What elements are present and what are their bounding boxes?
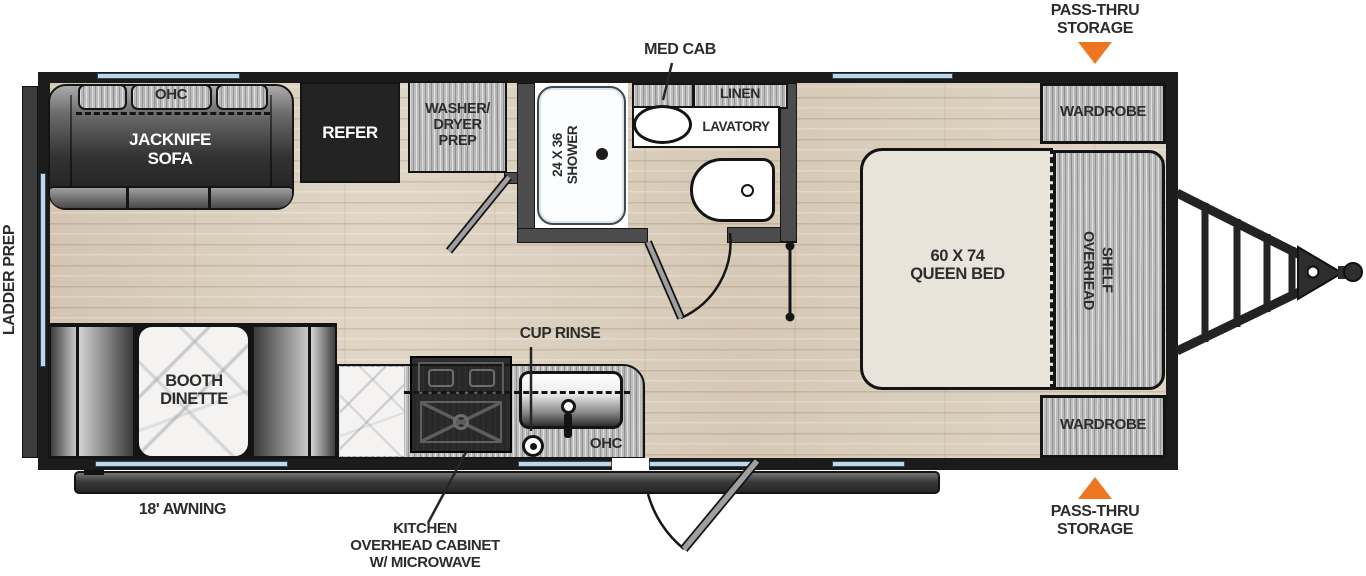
rear-bumper [22,86,38,458]
hitch-safety-ring [1308,267,1319,278]
window-top-left [97,73,240,79]
burner [469,369,495,387]
hitch-coupler [1298,247,1342,299]
wall-right [1166,72,1178,470]
hitch-frame [1177,193,1362,351]
oven-knob [453,414,469,430]
lavatory-label: LAVATORY [694,119,778,134]
cup-rinse-dot [530,443,537,450]
window-bottom-dinette [95,461,288,467]
shower-wall-bottom [517,228,648,243]
washer-dryer-label: WASHER/ DRYER PREP [410,101,505,150]
sofa-arm-line [270,95,272,187]
faucet-head [561,399,576,414]
shower-drain [596,148,608,160]
kitchen-dashed-line [404,391,630,394]
sofa-seat-cushions [50,186,292,208]
window-top-bedroom [832,73,953,79]
dinette-seat-right [254,327,308,456]
window-bottom-kitchen [518,461,612,467]
shower-wall-left [517,83,535,243]
toilet-flush-button [741,184,754,197]
lavatory-sink [633,105,692,144]
wardrobe-front-label: WARDROBE [1046,104,1160,121]
dinette-seat-left [79,327,133,456]
bath-wall-corner [504,172,518,184]
dinette-backrest-right [311,327,335,456]
sofa-ohc-label: OHC [141,87,201,104]
queen-bed-label: 60 X 74 QUEEN BED [880,247,1035,284]
linen-label: LINEN [700,86,780,102]
awning-label: 18' AWNING [110,501,255,519]
cup-rinse-label: CUP RINSE [495,325,625,342]
rv-floorplan: LADDER PREP 18' AWNING OHC JACKNIFE SOFA… [0,0,1366,576]
dinette-backrest-left [51,327,76,456]
hitch-ball [1344,263,1362,281]
sofa-cushion-divider [208,187,211,208]
pass-thru-bottom-arrow [1078,477,1112,499]
shower-label: 24 X 36 SHOWER [550,110,590,200]
window-rear [40,173,46,367]
kitchen-counter-marble [340,367,404,456]
stove-burner-grate [418,362,504,394]
refer-label: REFER [305,123,395,142]
booth-dinette-label: BOOTH DINETTE [139,372,249,409]
awning-bar [74,471,940,494]
pass-thru-top-label: PASS-THRU STORAGE [1020,2,1170,38]
faucet-stem [564,413,572,438]
burner [428,369,454,387]
sofa-cushion-divider [126,187,129,208]
window-entry-door [649,461,753,467]
ladder-prep-label: LADDER PREP [1,165,19,395]
med-cab-label: MED CAB [630,41,730,59]
overhead-shelf-label: OVERHEAD SHELF [1078,208,1138,332]
pass-thru-bottom-label: PASS-THRU STORAGE [1020,503,1170,539]
sofa-overhead-cabinet [78,84,127,110]
wardrobe-rear-label: WARDROBE [1046,417,1160,434]
toilet [690,158,775,222]
kitchen-ohc-label: OHC [578,436,634,453]
kitchen-overhead-label: KITCHEN OVERHEAD CABINET W/ MICROWAVE [340,521,510,571]
pass-thru-top-arrow [1078,42,1112,64]
sofa-arm-line [70,95,72,187]
entry-door-opening [612,458,649,470]
sofa-overhead-cabinet [216,84,268,110]
sofa-dashed-line [76,112,270,115]
jacknife-sofa-label: JACKNIFE SOFA [95,130,245,168]
window-bottom-bedroom [832,461,905,467]
